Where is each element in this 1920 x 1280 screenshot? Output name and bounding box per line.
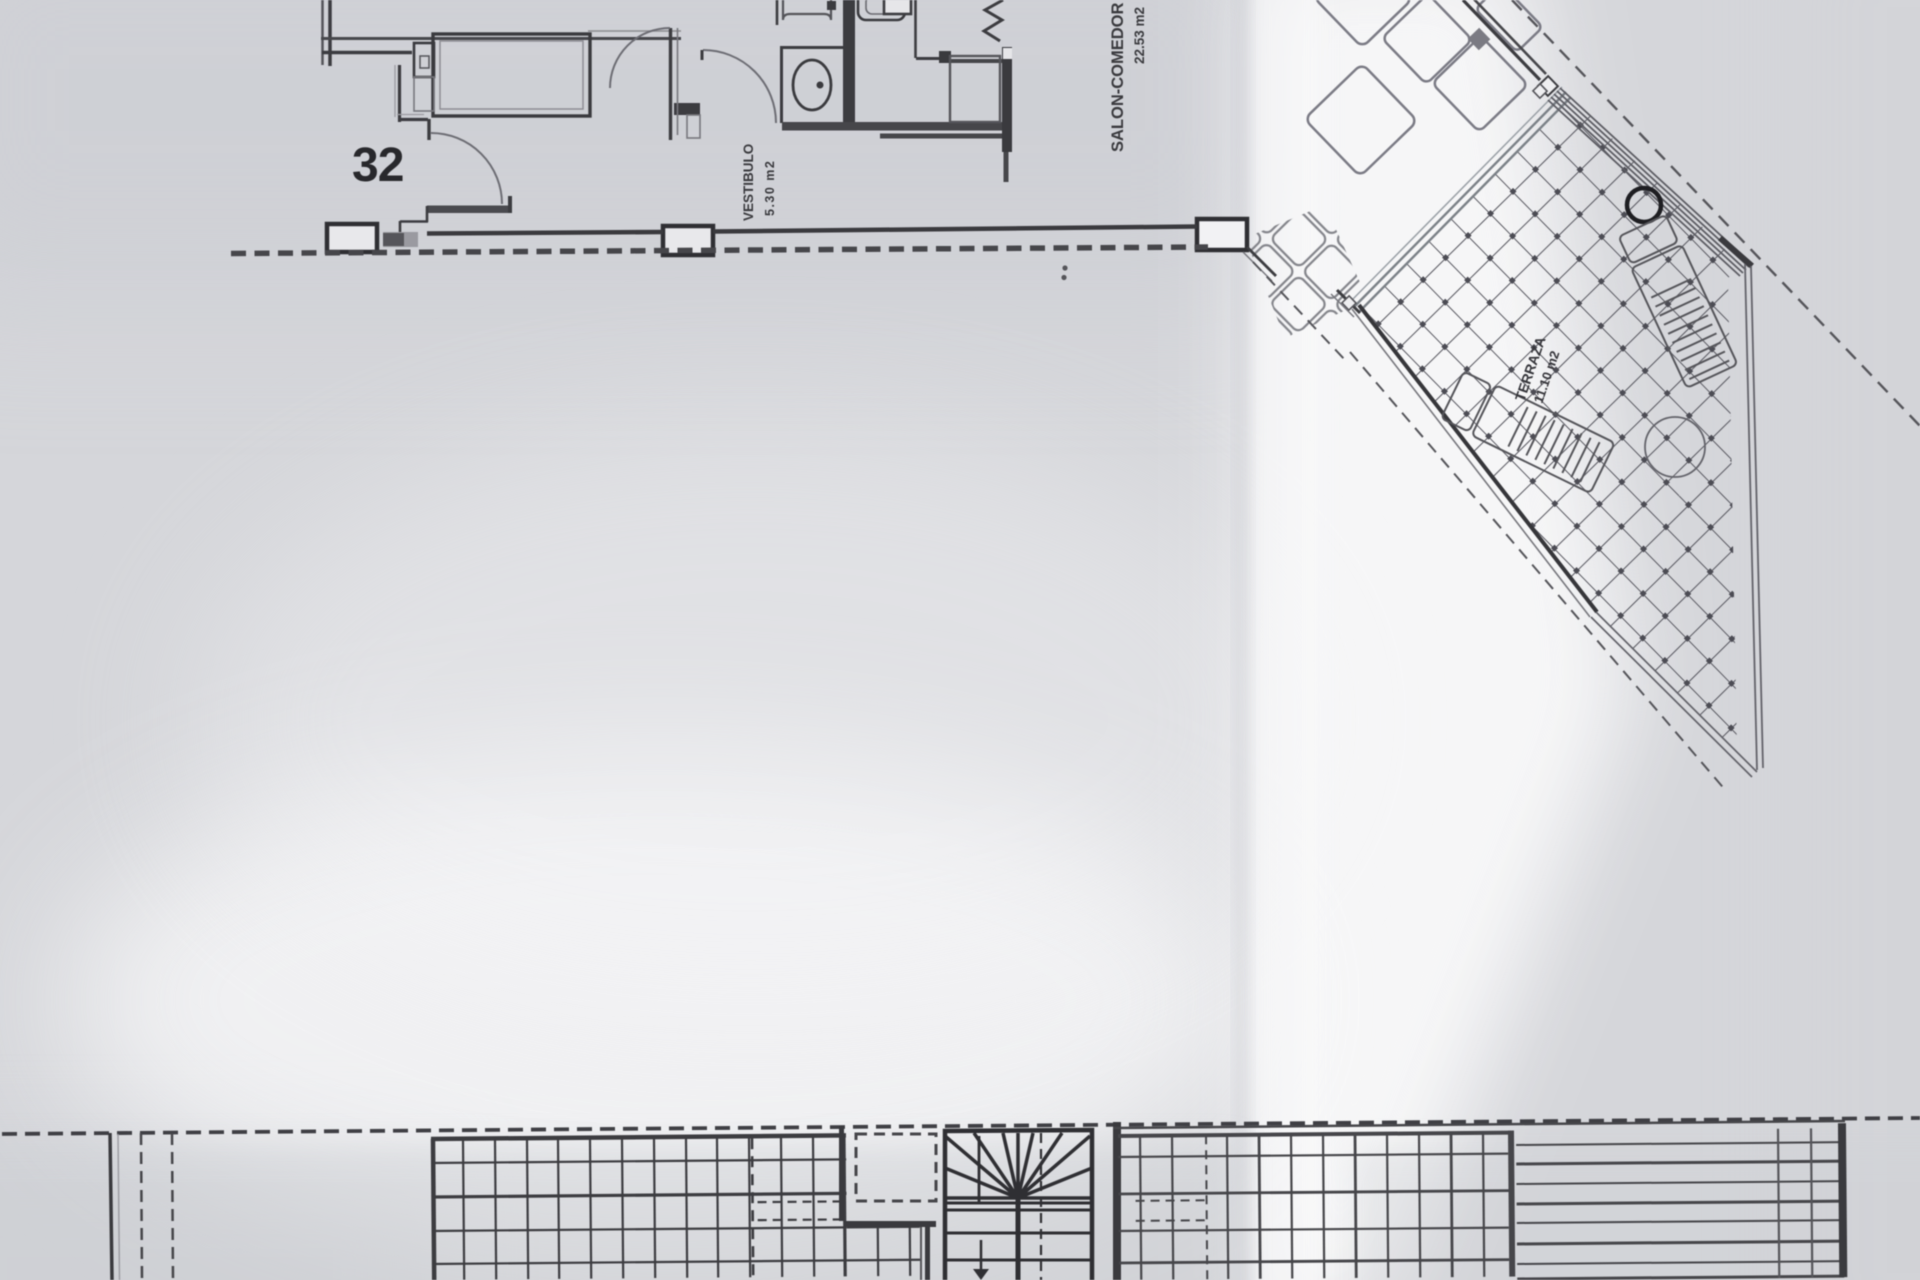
svg-text:22.53 m2: 22.53 m2 bbox=[1132, 7, 1147, 64]
svg-text:VESTIBULO: VESTIBULO bbox=[741, 144, 756, 221]
svg-text:5.30 m2: 5.30 m2 bbox=[763, 160, 777, 216]
svg-text:SALON-COMEDOR: SALON-COMEDOR bbox=[1109, 3, 1127, 152]
svg-text:32: 32 bbox=[352, 139, 403, 192]
